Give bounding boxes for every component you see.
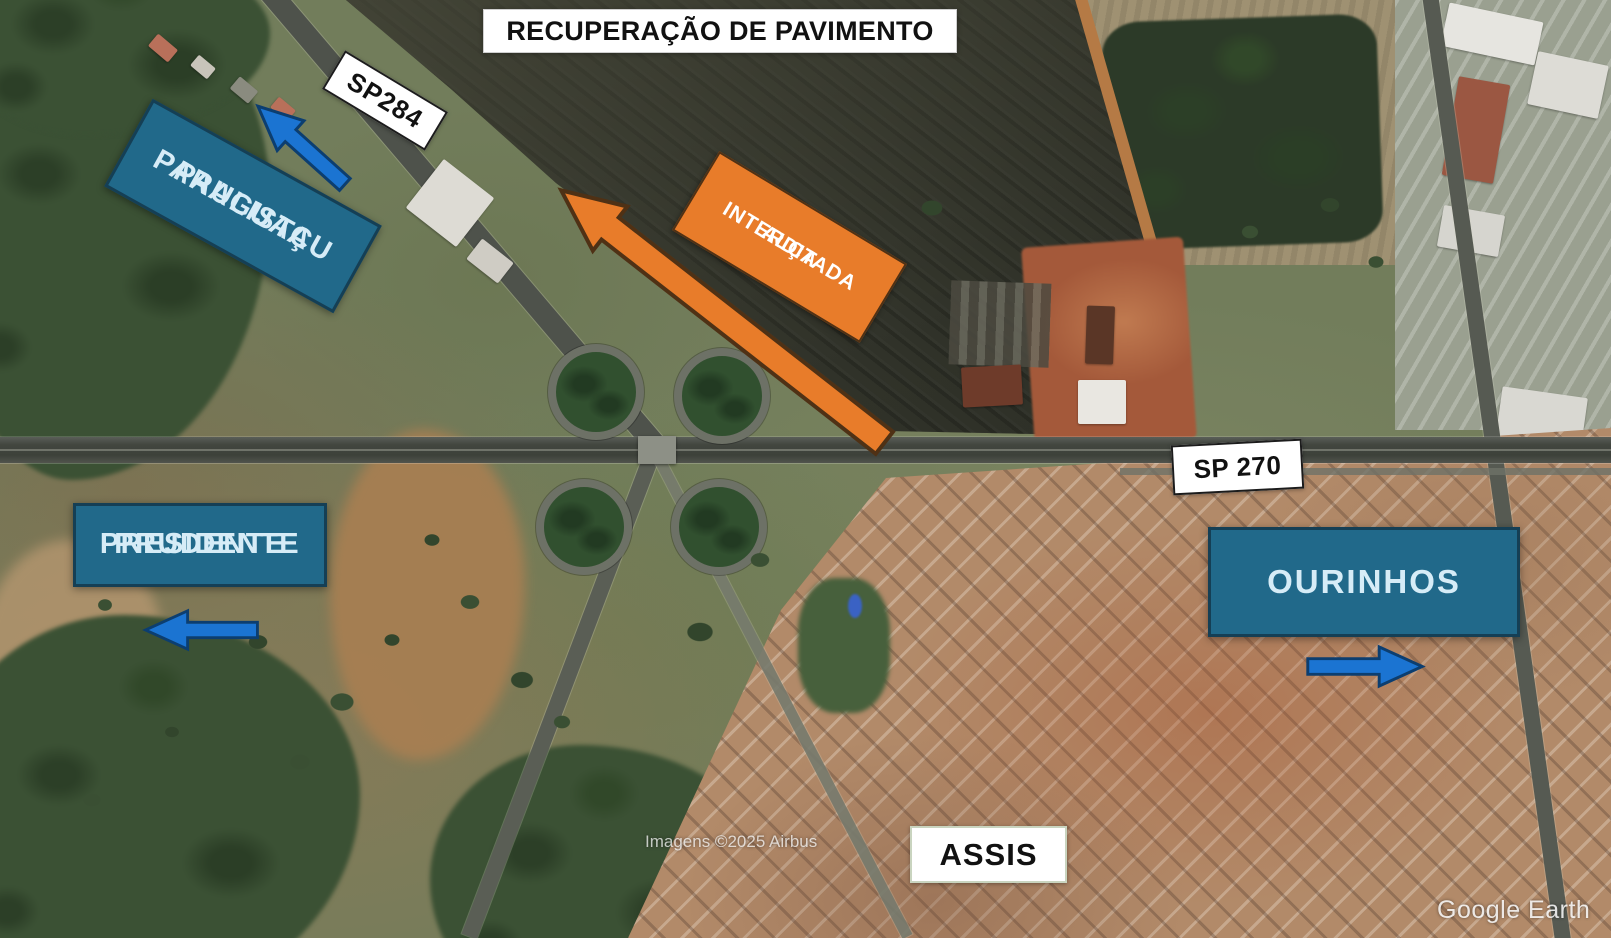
sp270-text: SP 270 xyxy=(1193,449,1282,485)
highway-median-line xyxy=(0,449,1611,451)
warehouse-building xyxy=(1085,306,1115,365)
assis-text: ASSIS xyxy=(939,837,1037,873)
title-banner: RECUPERAÇÃO DE PAVIMENTO xyxy=(483,9,957,53)
park-strip xyxy=(798,578,890,713)
annotated-satellite-map: Imagens ©2025 Airbus Google Earth RECUPE… xyxy=(0,0,1611,938)
container-rows xyxy=(949,280,1052,367)
building xyxy=(961,364,1023,407)
cloverleaf-loop-sw xyxy=(536,479,632,575)
city-label-assis: ASSIS xyxy=(910,826,1067,883)
destination-sign-ourinhos: OURINHOS xyxy=(1208,527,1520,637)
overpass xyxy=(638,436,676,464)
direction-arrow-ourinhos xyxy=(1303,644,1428,689)
title-text: RECUPERAÇÃO DE PAVIMENTO xyxy=(506,16,933,47)
cloverleaf-loop-se xyxy=(671,479,767,575)
google-earth-logo: Google Earth xyxy=(1437,896,1590,925)
road-label-sp270: SP 270 xyxy=(1171,439,1304,496)
pond xyxy=(848,594,862,618)
destination-sign-presidente-prudente: PRESIDENTE PRUDENTE xyxy=(73,503,327,587)
cloverleaf-loop-nw xyxy=(548,344,644,440)
ourinhos-text: OURINHOS xyxy=(1267,563,1461,601)
presidente-line2: PRUDENTE xyxy=(114,525,286,564)
direction-arrow-presidente-prudente xyxy=(139,608,263,652)
imagery-attribution: Imagens ©2025 Airbus xyxy=(645,832,817,852)
building xyxy=(1078,380,1126,424)
